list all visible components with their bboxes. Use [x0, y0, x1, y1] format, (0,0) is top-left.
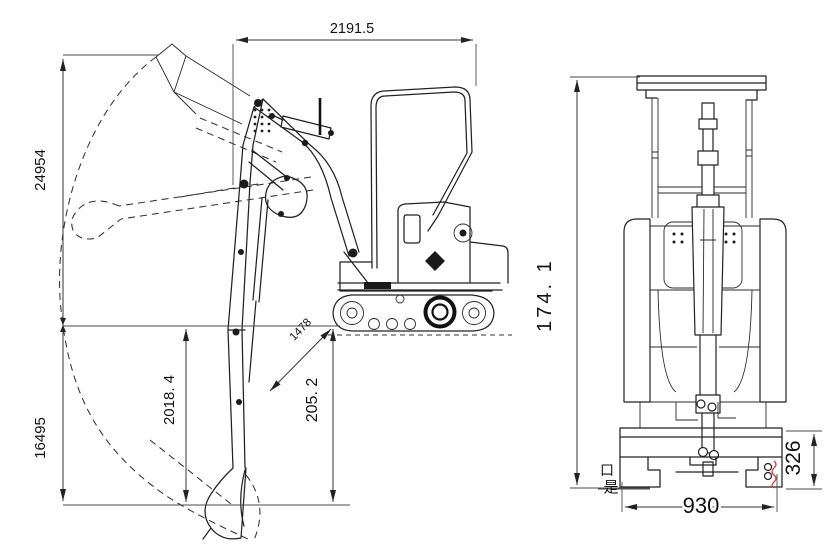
engine-detail-hub [460, 230, 467, 237]
dim-max-height-label: 24954 [32, 149, 49, 191]
dim-lower-height-label: 16495 [32, 417, 49, 459]
red-squiggle-mark [772, 461, 776, 488]
track-hole-top [765, 464, 772, 471]
front-body-left-panel [624, 219, 650, 402]
ref-lines-left-heights [63, 55, 340, 326]
side-view-drawing [60, 44, 512, 540]
phantom-arm-positions [72, 118, 313, 504]
front-view-drawing [598, 76, 786, 489]
tow-ring-outer [426, 298, 455, 327]
dim-track-width-label: 930 [683, 493, 720, 518]
vent-strip [364, 282, 391, 289]
raised-bucket-apex [156, 44, 250, 124]
bucket-alt-position [246, 475, 260, 540]
side-body [338, 202, 508, 290]
dim-front-depth-label: 205. 2 [304, 378, 321, 423]
working-envelope-arc [60, 57, 250, 540]
dim-overall-height-label: 174. 1 [534, 258, 556, 332]
dim-dig-depth-label: 2018. 4 [161, 375, 178, 425]
annotation-cjk-bottom: 是 [603, 479, 618, 496]
dim-split-arrows [60, 318, 66, 332]
track-wheels [341, 295, 486, 330]
dim-track-height-label: 326 [782, 440, 805, 475]
side-canopy [371, 87, 472, 268]
front-body-right-panel [760, 219, 786, 402]
dim-diagonal-label: 1478 [288, 317, 314, 344]
side-dipper-arm [228, 183, 268, 468]
front-roof [637, 76, 766, 100]
drawing-canvas: 2191.5 24954 16495 2018. 4 205. 2 1478 [0, 0, 834, 544]
dim-top-width-label: 2191.5 [330, 21, 374, 37]
tow-ring-inner [433, 305, 448, 320]
annotation-cjk-top: 口 [600, 462, 614, 478]
track-hole-bottom [765, 473, 772, 480]
body-diamond-mark [425, 251, 445, 271]
side-view-dimensions: 2191.5 24954 16495 2018. 4 205. 2 1478 [32, 21, 476, 505]
front-track-frame [620, 428, 782, 487]
excavator-drawing-svg: 2191.5 24954 16495 2018. 4 205. 2 1478 [0, 0, 834, 544]
